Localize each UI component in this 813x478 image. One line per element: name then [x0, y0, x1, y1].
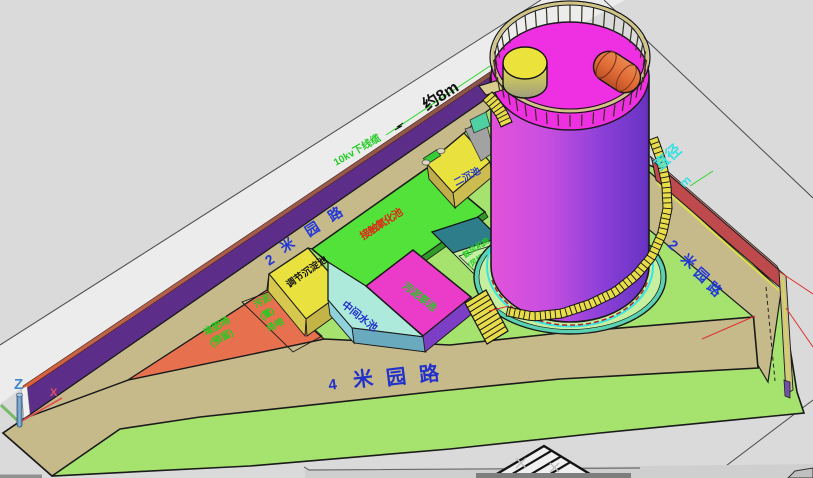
svg-text:Z: Z — [14, 376, 23, 393]
svg-text:X: X — [50, 387, 58, 399]
svg-text:路: 路 — [418, 361, 442, 387]
svg-text:米: 米 — [352, 367, 376, 392]
svg-text:园: 园 — [385, 366, 408, 390]
